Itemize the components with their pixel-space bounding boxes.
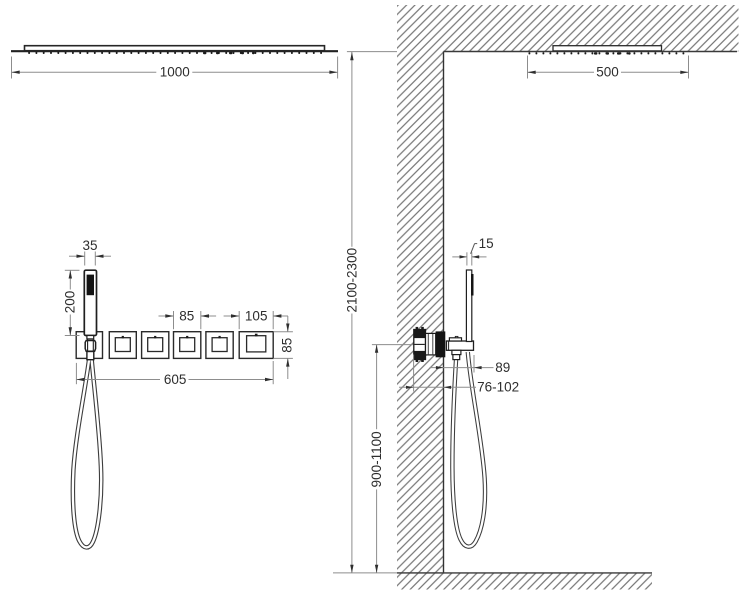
svg-text:89: 89 [495,360,510,375]
svg-text:105: 105 [245,308,268,323]
svg-text:2100-2300: 2100-2300 [345,248,360,313]
svg-text:900-1100: 900-1100 [369,431,384,487]
svg-text:85: 85 [279,338,294,353]
svg-text:605: 605 [164,372,187,387]
svg-text:35: 35 [82,238,97,253]
svg-text:76-102: 76-102 [477,380,519,395]
svg-text:200: 200 [63,291,78,314]
svg-text:1000: 1000 [160,64,190,79]
svg-text:85: 85 [179,308,194,323]
svg-text:500: 500 [596,65,619,80]
svg-text:15: 15 [479,236,494,251]
